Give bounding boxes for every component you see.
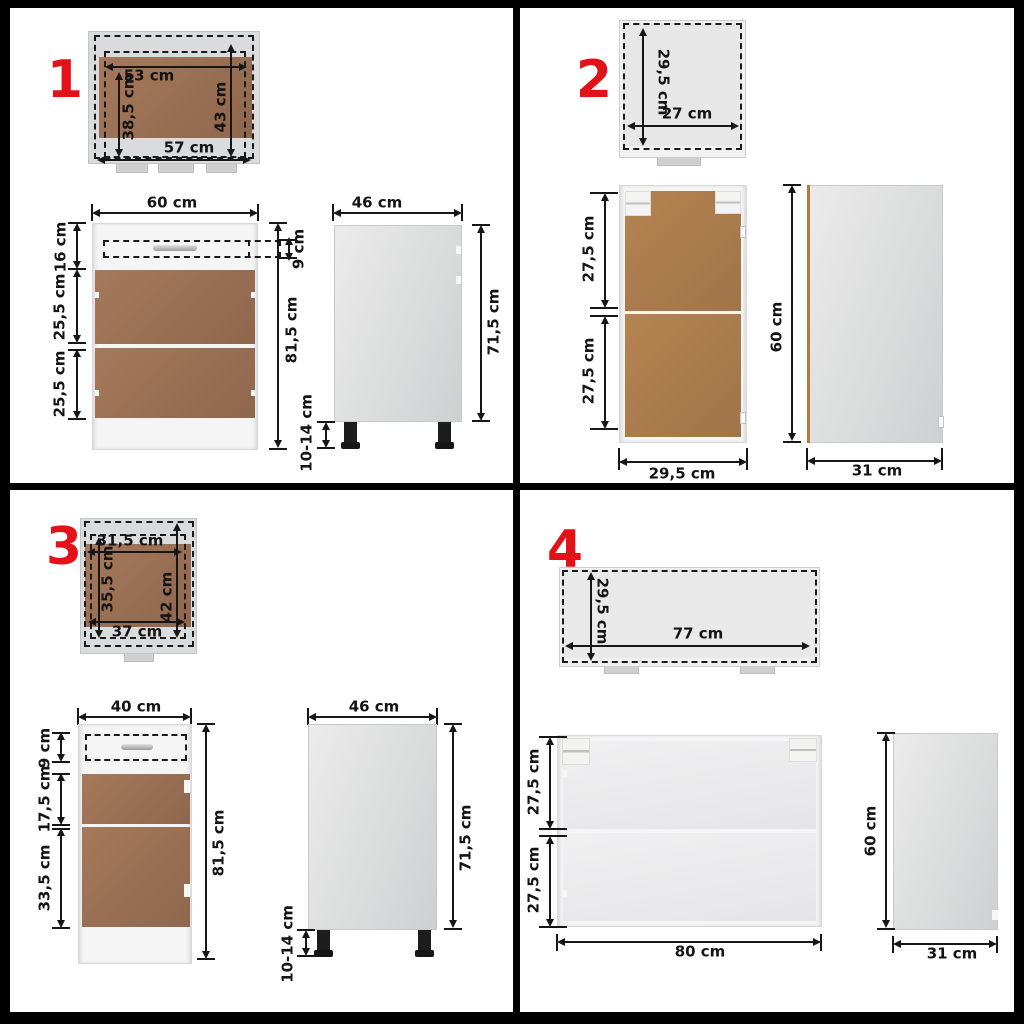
item1-side-view-body [334, 225, 462, 422]
dim-label: 17,5 cm [38, 766, 53, 833]
item3-upper-door [82, 774, 190, 824]
door-handle [740, 412, 746, 424]
dim-arrow [480, 233, 482, 413]
dim-arrow [277, 231, 279, 440]
item4-side-view-body [893, 733, 998, 930]
dim-arrow [176, 531, 178, 630]
item4-upper-glass-door [563, 741, 816, 829]
item2-side-view-body [807, 185, 943, 443]
drawer-handle [153, 245, 197, 251]
dim-label: 27,5 cm [582, 338, 597, 405]
dim-label: 27 cm [662, 107, 713, 122]
dim-arrow [316, 716, 429, 718]
dim-label: 38,5 cm [122, 74, 137, 141]
dim-arrow [791, 193, 793, 433]
dim-label: 27,5 cm [527, 847, 542, 914]
dim-arrow [76, 277, 78, 335]
item4-top-tab [604, 667, 639, 674]
dim-label: 71,5 cm [459, 805, 474, 872]
dim-label: 60 cm [770, 302, 785, 353]
cabinet-leg [418, 930, 431, 951]
dim-arrow [230, 52, 232, 149]
dim-arrow [452, 732, 454, 920]
item3-side-view-body [308, 724, 437, 930]
dim-tick [877, 928, 895, 930]
hinge-mount [715, 191, 741, 214]
dim-label: 27,5 cm [582, 216, 597, 283]
dim-arrow [60, 781, 62, 817]
item-number-1: 1 [47, 54, 83, 106]
dim-label: 60 cm [147, 196, 198, 211]
item2-side-edge-band [807, 185, 810, 443]
item-number-3: 3 [46, 521, 82, 573]
item4-top-tab [740, 667, 775, 674]
hinge-dot [251, 292, 255, 298]
dim-label: 46 cm [352, 196, 403, 211]
dim-label: 10-14 cm [281, 905, 296, 983]
dim-arrow [573, 645, 802, 647]
item2-top-dashed-outline [623, 23, 742, 150]
item2-top-tab [657, 158, 701, 166]
dim-arrow [604, 324, 606, 421]
item1-top-tab [158, 164, 194, 173]
cabinet-foot [341, 442, 360, 449]
side-notch [456, 276, 461, 284]
dim-label: 25,5 cm [53, 274, 68, 341]
dim-arrow [549, 745, 551, 821]
dim-arrow [100, 212, 250, 214]
item1-upper-door [95, 270, 255, 344]
dim-arrow [325, 430, 327, 440]
horizontal-divider [10, 483, 1014, 490]
cabinet-foot [415, 950, 434, 957]
dim-label: 81,5 cm [285, 297, 300, 364]
side-notch [992, 910, 998, 920]
cabinet-leg [438, 422, 451, 443]
hinge-mount [789, 738, 817, 762]
hinge-dot [251, 390, 255, 396]
dim-label: 16 cm [54, 222, 69, 273]
dim-label: 25,5 cm [53, 351, 68, 418]
cabinet-leg [317, 930, 330, 951]
dim-arrow [635, 125, 731, 127]
item1-top-tab [116, 164, 148, 173]
dim-label: 77 cm [673, 627, 724, 642]
item2-lower-door [625, 314, 741, 437]
door-handle [740, 226, 746, 238]
item3-top-tab [124, 654, 154, 662]
hinge-dot [563, 890, 567, 897]
door-handle [184, 780, 190, 793]
dim-label: 81,5 cm [212, 810, 227, 877]
dim-arrow [590, 580, 592, 653]
dim-label: 57 cm [164, 141, 215, 156]
dim-arrow [60, 740, 62, 754]
dim-arrow [60, 836, 62, 920]
hinge-dot [563, 770, 567, 777]
dim-label: 60 cm [864, 806, 879, 857]
dim-label: 31 cm [927, 947, 978, 962]
dim-label: 33,5 cm [38, 845, 53, 912]
dim-label: 42 cm [160, 572, 175, 623]
hinge-dot [95, 390, 99, 396]
door-handle [184, 884, 190, 897]
dim-label: 80 cm [675, 945, 726, 960]
dim-label: 31 cm [852, 464, 903, 479]
dim-arrow [305, 938, 307, 948]
dim-label: 43 cm [214, 82, 229, 133]
hinge-mount [625, 191, 651, 216]
kitchen-cabinet-dimension-diagram: 1 53 cm 57 cm 38,5 cm 43 cm 60 cm 16 cm … [0, 0, 1024, 1024]
cabinet-leg [344, 422, 357, 443]
dim-arrow [76, 231, 78, 261]
vertical-divider [513, 8, 520, 1012]
dim-label: 71,5 cm [487, 289, 502, 356]
dim-arrow [604, 201, 606, 300]
dim-tick [783, 441, 801, 443]
dim-label: 29,5 cm [595, 578, 610, 645]
hinge-dot [95, 292, 99, 298]
door-handle [938, 416, 944, 428]
dim-label: 37 cm [112, 625, 163, 640]
side-notch [456, 246, 461, 254]
dim-label: 9 cm [38, 728, 53, 768]
item3-lower-door [82, 827, 190, 927]
dim-label: 9 cm [292, 229, 307, 269]
item-number-2: 2 [576, 54, 612, 106]
dim-arrow [105, 159, 243, 161]
dim-tick [444, 928, 462, 930]
dim-label: 40 cm [111, 700, 162, 715]
dim-arrow [627, 461, 739, 463]
hinge-mount [562, 738, 590, 765]
dim-arrow [642, 36, 644, 138]
cabinet-foot [314, 950, 333, 957]
item1-top-tab [206, 164, 237, 173]
dim-arrow [76, 357, 78, 411]
dim-tick [269, 448, 287, 450]
dim-label: 27,5 cm [527, 749, 542, 816]
dim-arrow [205, 732, 207, 951]
dim-label: 10-14 cm [300, 394, 315, 472]
dim-arrow [86, 716, 183, 718]
item1-lower-door [95, 348, 255, 418]
dim-arrow [885, 741, 887, 920]
item1-drawer-dashed-divider [248, 240, 250, 258]
cabinet-foot [435, 442, 454, 449]
dim-label: 35,5 cm [101, 546, 116, 613]
dim-arrow [549, 844, 551, 919]
dim-label: 29,5 cm [649, 467, 716, 482]
drawer-handle [121, 744, 153, 750]
dim-arrow [341, 212, 454, 214]
item4-lower-glass-door [563, 833, 816, 921]
dim-label: 46 cm [349, 700, 400, 715]
